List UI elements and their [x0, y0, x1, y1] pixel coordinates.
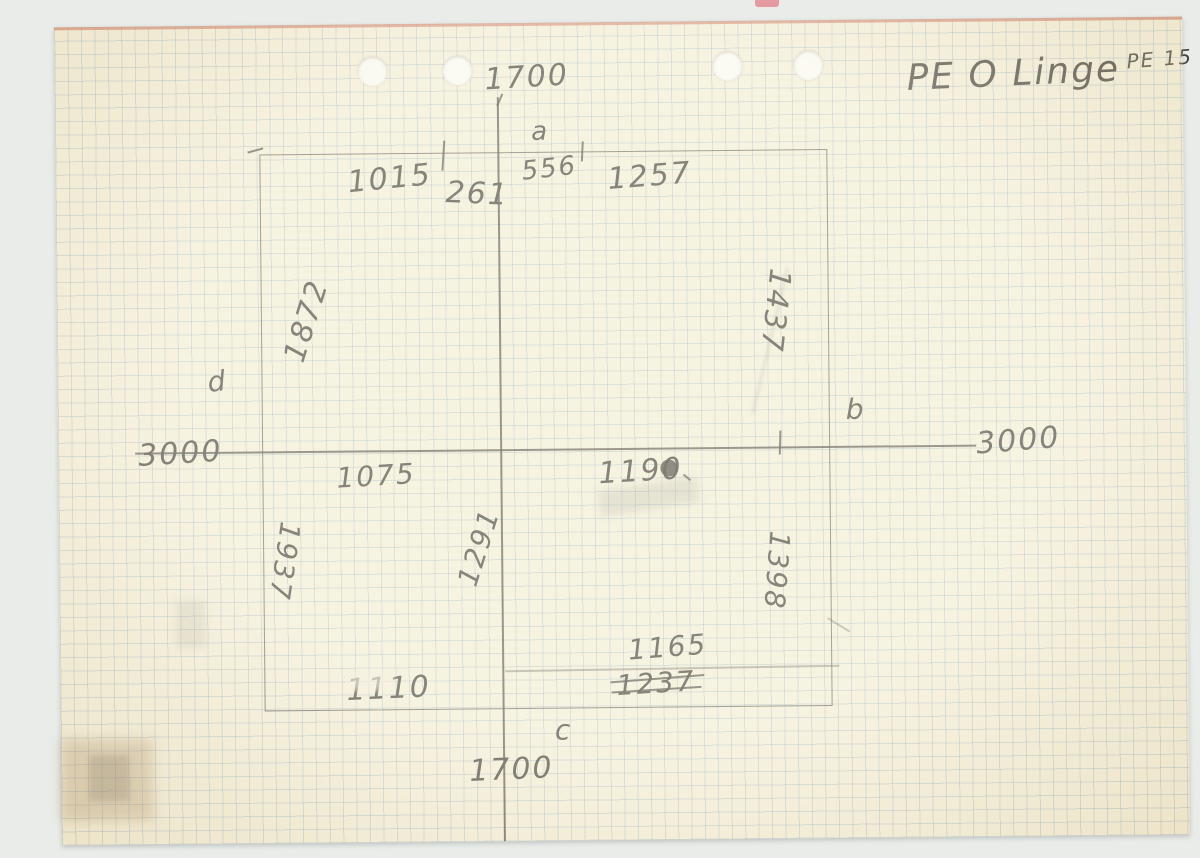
stain-bottom-left — [61, 739, 154, 822]
adjacent-sheet-edge — [755, 0, 779, 7]
measurement-bottom-1165: 1165 — [627, 630, 708, 664]
measurement-interior-1075: 1075 — [336, 460, 417, 493]
measurement-bottom-struck-1237: 1237 — [616, 667, 697, 700]
measurement-horizontal-left: 3000 — [137, 437, 223, 472]
paper-red-edge — [54, 17, 1182, 31]
punch-hole — [793, 50, 823, 80]
axis-label-a: a — [531, 119, 549, 145]
measurement-horizontal-right: 3000 — [975, 423, 1061, 460]
measurement-right-wall-lower: 1398 — [759, 530, 793, 611]
page-reference: PE 15 — [1126, 46, 1194, 71]
page-title: PE O Linge — [906, 51, 1121, 96]
measured-square-outline — [259, 149, 832, 711]
punch-hole — [712, 51, 742, 81]
measurement-vertical-top: 1700 — [484, 60, 570, 95]
axis-label-b: b — [846, 396, 866, 424]
measurement-right-wall-upper: 1437 — [755, 267, 794, 354]
scanned-page: PE O Linge PE 15 1700 1700 3000 3000 a b… — [0, 0, 1200, 858]
measurement-vertical-bottom: 1700 — [469, 753, 555, 787]
axis-label-c: c — [555, 716, 573, 744]
measurement-bottom-1110: 1110 — [346, 672, 432, 706]
measurement-top-1015: 1015 — [346, 160, 433, 198]
punch-hole — [442, 55, 472, 85]
scribbled-out-digit — [660, 459, 677, 476]
corner-mark-top-left — [247, 147, 263, 153]
measurement-top-556: 556 — [520, 153, 578, 185]
graph-paper: PE O Linge PE 15 1700 1700 3000 3000 a b… — [54, 17, 1190, 846]
pencil-smudge — [176, 600, 206, 648]
axis-label-d: d — [206, 367, 229, 397]
punch-hole — [357, 56, 387, 86]
stain-bottom-left-dark — [89, 755, 129, 801]
measurement-top-1257: 1257 — [607, 158, 693, 195]
measurement-top-261: 261 — [445, 178, 509, 211]
